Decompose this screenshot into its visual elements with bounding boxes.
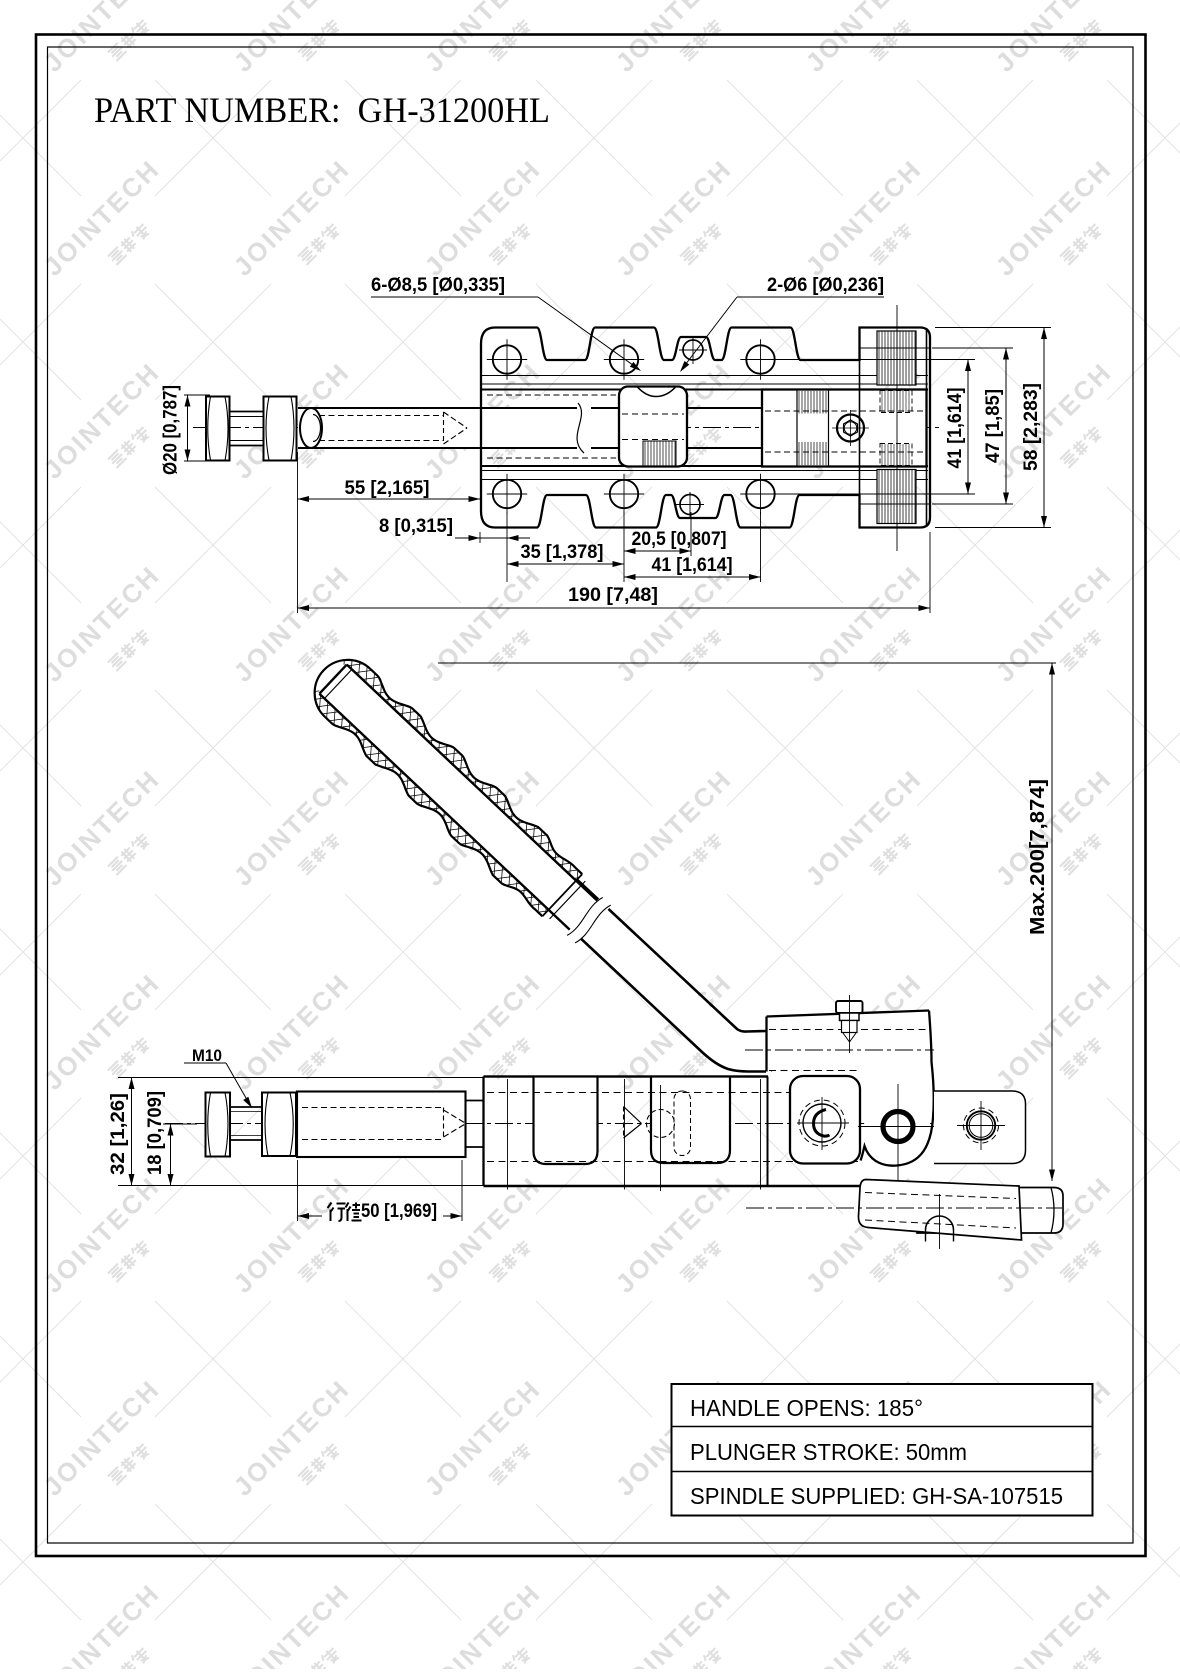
svg-text:20,5 [0,807]: 20,5 [0,807]: [632, 529, 727, 550]
svg-text:41 [1,614]: 41 [1,614]: [652, 555, 733, 576]
svg-text:35 [1,378]: 35 [1,378]: [521, 542, 604, 563]
svg-text:190 [7,48]: 190 [7,48]: [568, 585, 658, 606]
svg-text:PLUNGER STROKE: 50mm: PLUNGER STROKE: 50mm: [690, 1439, 967, 1465]
svg-text:Ø20 [0,787]: Ø20 [0,787]: [161, 385, 182, 475]
svg-text:M10: M10: [192, 1046, 222, 1065]
svg-text:2-Ø6 [Ø0,236]: 2-Ø6 [Ø0,236]: [767, 274, 884, 296]
svg-text:SPINDLE SUPPLIED: GH-SA-107515: SPINDLE SUPPLIED: GH-SA-107515: [690, 1483, 1063, 1509]
svg-text:6-Ø8,5 [Ø0,335]: 6-Ø8,5 [Ø0,335]: [371, 274, 505, 296]
svg-text:32 [1,26]: 32 [1,26]: [108, 1093, 129, 1175]
svg-text:HANDLE OPENS: 185°: HANDLE OPENS: 185°: [690, 1395, 923, 1421]
svg-text:PART NUMBER: GH-31200HL: PART NUMBER: GH-31200HL: [94, 90, 550, 130]
svg-text:41 [1,614]: 41 [1,614]: [945, 388, 966, 469]
svg-text:8 [0,315]: 8 [0,315]: [379, 516, 453, 537]
svg-text:18 [0,709]: 18 [0,709]: [145, 1091, 166, 1175]
svg-text:50 [1,969]: 50 [1,969]: [361, 1201, 437, 1222]
svg-text:Max.200[7,874]: Max.200[7,874]: [1027, 779, 1049, 935]
svg-text:58 [2,283]: 58 [2,283]: [1021, 383, 1042, 471]
svg-text:55 [2,165]: 55 [2,165]: [345, 478, 430, 499]
svg-text:47 [1,85]: 47 [1,85]: [983, 389, 1004, 463]
